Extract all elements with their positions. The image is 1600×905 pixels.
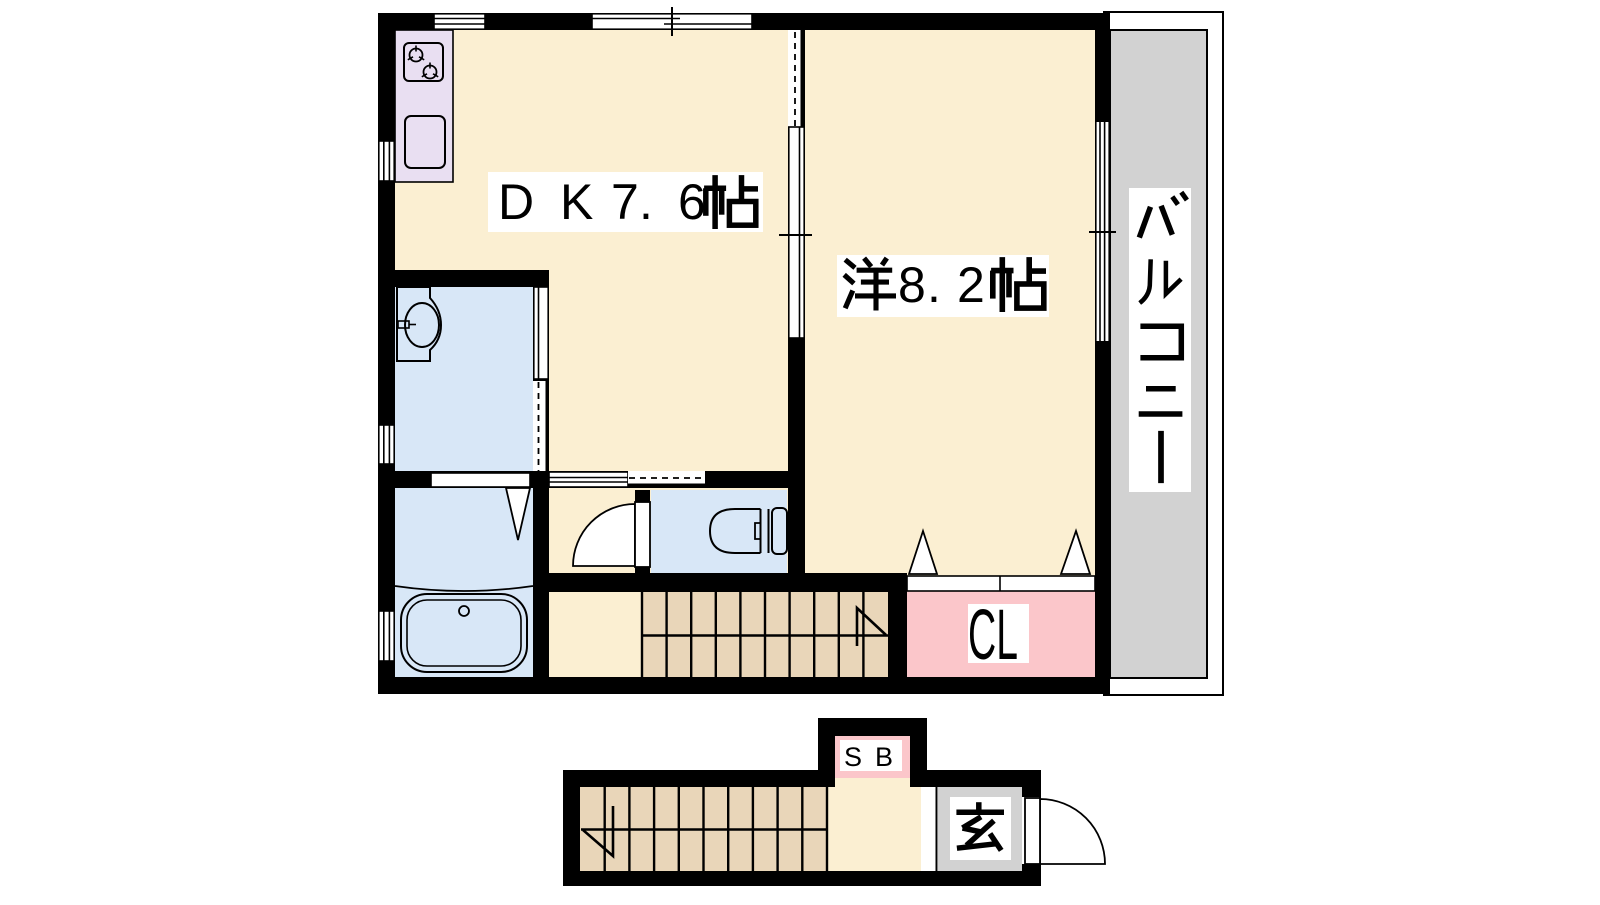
svg-text:6: 6 bbox=[678, 174, 706, 230]
svg-text:.: . bbox=[927, 257, 941, 313]
svg-text:7: 7 bbox=[611, 174, 639, 230]
svg-text:.: . bbox=[639, 174, 653, 230]
svg-text:SB: SB bbox=[844, 742, 906, 772]
svg-text:8: 8 bbox=[898, 257, 926, 313]
svg-text:2: 2 bbox=[957, 257, 985, 313]
svg-text:D: D bbox=[498, 174, 534, 230]
svg-text:CL: CL bbox=[968, 596, 1018, 675]
svg-text:K: K bbox=[560, 174, 593, 230]
